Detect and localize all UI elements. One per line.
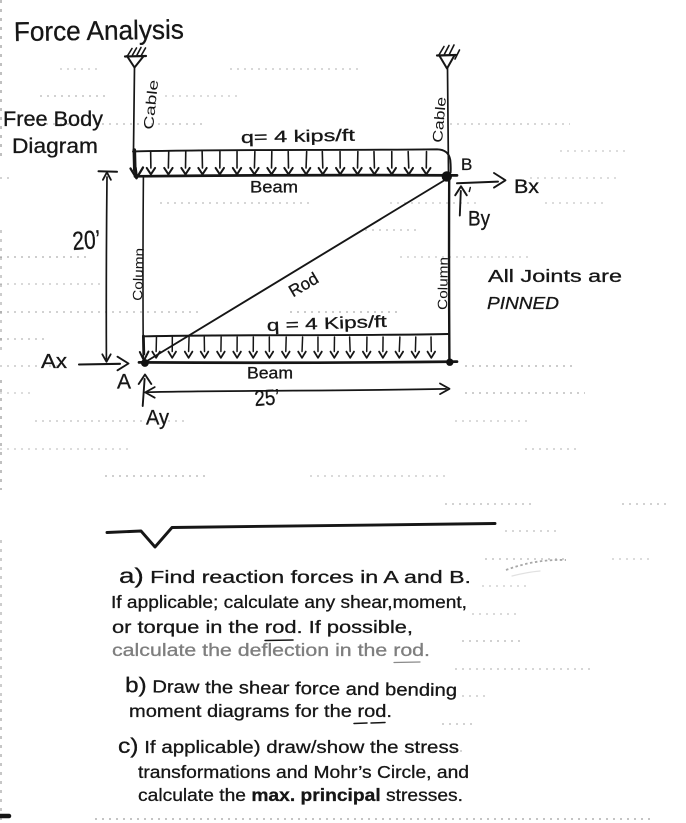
- svg-text:Diagram: Diagram: [12, 135, 98, 158]
- svg-text:Column: Column: [435, 257, 451, 310]
- svg-text:B: B: [461, 155, 472, 174]
- svg-text:Cable: Cable: [140, 79, 161, 131]
- svg-text:25’: 25’: [254, 384, 281, 411]
- svg-text:q = 4 Kips/ft: q = 4 Kips/ft: [267, 313, 388, 335]
- svg-text:Column: Column: [130, 248, 147, 301]
- svg-text:calculate the deflection in th: calculate the deflection in the rod.: [112, 640, 430, 660]
- svg-text:20’: 20’: [71, 224, 101, 256]
- svg-text:a) Find reaction forces in A a: a) Find reaction forces in A and B.: [119, 565, 471, 588]
- svg-text:b) Draw the shear force and be: b) Draw the shear force and bending: [125, 674, 457, 701]
- svg-text:Force Analysis: Force Analysis: [14, 15, 184, 47]
- svg-text:Free Body: Free Body: [3, 108, 104, 131]
- svg-text:q= 4 kips/ft: q= 4 kips/ft: [241, 127, 356, 147]
- svg-text:Cable: Cable: [429, 96, 449, 143]
- svg-text:If applicable; calculate any s: If applicable; calculate any shear,momen…: [111, 592, 467, 612]
- svg-text:PINNED: PINNED: [487, 293, 559, 313]
- svg-text:Beam: Beam: [247, 365, 293, 383]
- svg-text:Bx: Bx: [514, 177, 540, 198]
- svg-text:c) If applicable) draw/show th: c) If applicable) draw/show the stress: [118, 735, 459, 758]
- svg-text:All Joints are: All Joints are: [488, 266, 622, 286]
- svg-text:Ax: Ax: [41, 351, 67, 373]
- svg-text:or torque in the rod. If possi: or torque in the rod. If possible,: [112, 617, 413, 637]
- svg-text:Ay: Ay: [146, 407, 169, 430]
- svg-text:transformations and Mohr’s Cir: transformations and Mohr’s Circle, and: [138, 762, 469, 782]
- svg-text:moment diagrams for the rod.: moment diagrams for the rod.: [129, 701, 392, 721]
- svg-text:By: By: [468, 208, 490, 231]
- svg-text:calculate the max. principal s: calculate the max. principal stresses.: [138, 785, 463, 805]
- svg-text:Beam: Beam: [250, 179, 298, 197]
- svg-text:A: A: [117, 371, 131, 394]
